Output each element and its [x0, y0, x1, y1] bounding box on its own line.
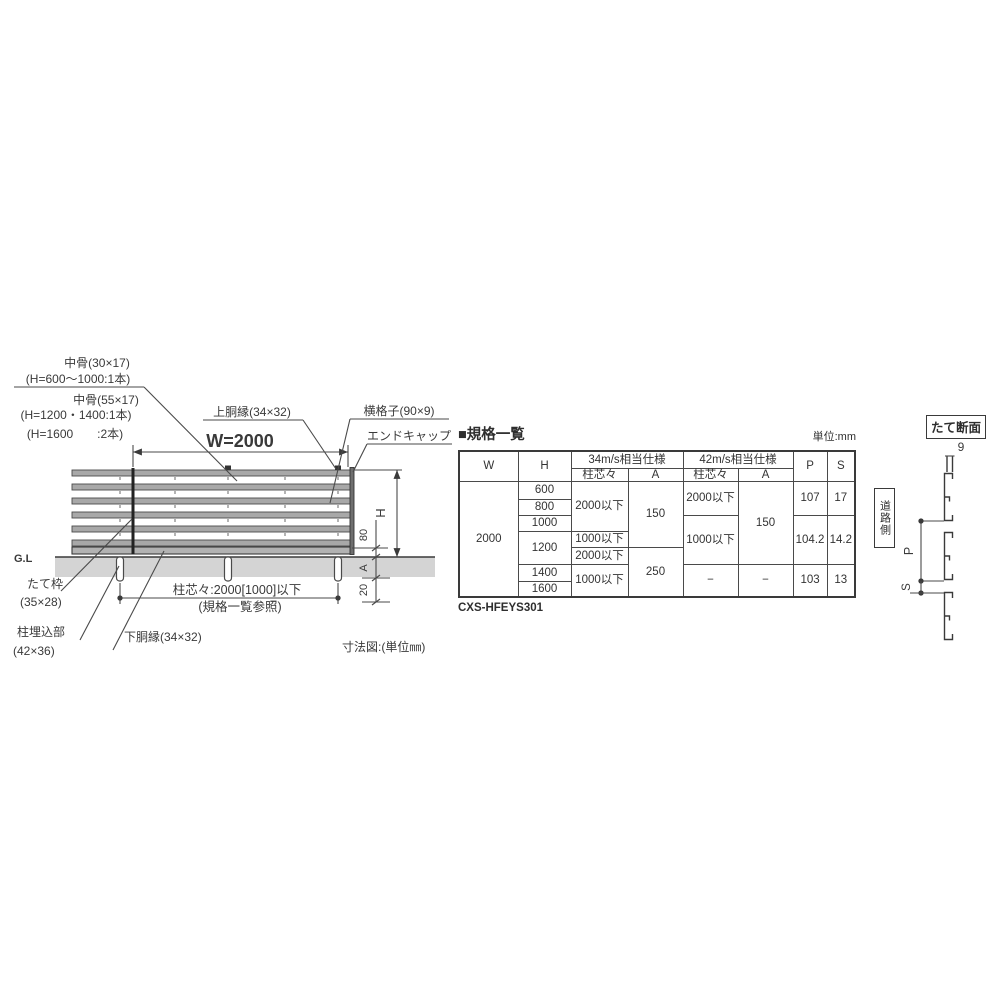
section-title: たて断面 — [926, 415, 986, 439]
cell-s-1: 17 — [827, 481, 855, 515]
cell-h-800: 800 — [518, 499, 571, 515]
cell-w: 2000 — [459, 481, 518, 597]
table-row: 2000 600 2000以下 150 2000以下 150 107 17 — [459, 481, 855, 499]
slat-profile — [945, 474, 953, 521]
nakabone1-note: (H=600〜1000:1本) — [26, 372, 130, 386]
cell-34-a-1: 150 — [628, 481, 683, 547]
header-row-1: W H 34m/s相当仕様 42m/s相当仕様 P S — [459, 451, 855, 468]
page: G.L — [0, 0, 1000, 1000]
nakabone2-note2: (H=1600 :2本) — [27, 427, 123, 441]
cell-34-pitch-2: 1000以下 — [571, 531, 628, 547]
bottom-rail-label: 下胴縁(34×32) — [124, 629, 202, 644]
section-view: 9 P S — [901, 440, 965, 640]
section-pitch-label: P — [902, 547, 916, 555]
col-42-a: A — [738, 468, 793, 481]
spec-panel: ■規格一覧 単位:mm W H 34m/s相当仕様 42m/s相当仕様 P S … — [458, 423, 856, 614]
cell-42-pitch-3: − — [683, 564, 738, 597]
cell-h-600: 600 — [518, 481, 571, 499]
spec-table: W H 34m/s相当仕様 42m/s相当仕様 P S 柱芯々 A 柱芯々 A … — [458, 450, 856, 598]
height-dimension: H 80 A 20 — [352, 470, 402, 605]
col-w: W — [459, 451, 518, 481]
post-pitch-note: (規格一覧参照) — [198, 599, 281, 614]
cell-h-1000: 1000 — [518, 515, 571, 531]
top-rail-label: 上胴縁(34×32) — [213, 404, 291, 419]
post-embed-label: 柱埋込部 — [17, 624, 65, 639]
end-cap-label: エンドキャップ — [367, 429, 451, 443]
post-pitch-label: 柱芯々:2000[1000]以下 — [173, 582, 302, 597]
cell-s-2: 14.2 — [827, 515, 855, 564]
cell-h-1200: 1200 — [518, 531, 571, 564]
col-34-a: A — [628, 468, 683, 481]
drawing-caption: 寸法図:(単位㎜) — [342, 639, 425, 654]
cell-42-pitch-1: 2000以下 — [683, 481, 738, 515]
gl-label: G.L — [14, 553, 33, 565]
section-gap-label: S — [901, 583, 913, 591]
cell-p-2: 104.2 — [793, 515, 827, 564]
cell-34-pitch-4: 1000以下 — [571, 564, 628, 597]
height-dim-label: H — [373, 508, 388, 517]
cell-34-pitch-1: 2000以下 — [571, 481, 628, 531]
cell-p-1: 107 — [793, 481, 827, 515]
cell-42-a-2: − — [738, 564, 793, 597]
vertical-frame — [132, 468, 135, 554]
width-dimension: W=2000 — [133, 431, 348, 467]
col-42-pitch: 柱芯々 — [683, 468, 738, 481]
slat-thickness-label: 9 — [958, 440, 965, 454]
col-group-34: 34m/s相当仕様 — [571, 451, 683, 468]
cell-34-a-2: 250 — [628, 547, 683, 597]
spec-header: ■規格一覧 単位:mm — [458, 423, 856, 444]
cell-p-3: 103 — [793, 564, 827, 597]
col-34-pitch: 柱芯々 — [571, 468, 628, 481]
tate-waku-size: (35×28) — [20, 595, 62, 609]
cell-42-a-1: 150 — [738, 481, 793, 564]
post-embed-size: (42×36) — [13, 644, 55, 658]
horizontal-slats — [72, 470, 352, 546]
col-p: P — [793, 451, 827, 481]
slat-profile — [945, 533, 953, 580]
gap80-dim-label: 80 — [358, 529, 370, 541]
nakabone1-label: 中骨(30×17) — [64, 355, 130, 370]
bottom-rail — [72, 547, 352, 554]
callout-labels: 中骨(30×17) (H=600〜1000:1本) 中骨(55×17) (H=1… — [14, 355, 452, 503]
ground-hatch — [55, 557, 435, 577]
cell-h-1600: 1600 — [518, 581, 571, 597]
cell-s-3: 13 — [827, 564, 855, 597]
nakabone2-note1: (H=1200・1400:1本) — [20, 408, 131, 422]
cell-34-pitch-3: 2000以下 — [571, 547, 628, 564]
width-dim-label: W=2000 — [206, 431, 274, 451]
slat-profile — [945, 593, 953, 640]
hidden-post-lines — [120, 470, 338, 546]
col-s: S — [827, 451, 855, 481]
post-pitch-dimension: 柱芯々:2000[1000]以下 (規格一覧参照) — [120, 582, 338, 614]
model-number: CXS-HFEYS301 — [458, 602, 856, 614]
tate-waku-label: たて枠 — [27, 577, 63, 591]
road-side-label: 道路側 — [874, 488, 895, 548]
col-h: H — [518, 451, 571, 481]
nakabone2-label: 中骨(55×17) — [73, 392, 139, 407]
below20-dim-label: 20 — [358, 584, 370, 596]
col-group-42: 42m/s相当仕様 — [683, 451, 793, 468]
cell-h-1400: 1400 — [518, 564, 571, 581]
cell-42-pitch-2: 1000以下 — [683, 515, 738, 564]
end-cap-bar — [350, 468, 354, 555]
spec-unit: 単位:mm — [813, 428, 856, 444]
embed-a-dim-label: A — [358, 564, 370, 572]
spec-title: ■規格一覧 — [458, 423, 525, 444]
slat-label: 横格子(90×9) — [363, 403, 434, 418]
